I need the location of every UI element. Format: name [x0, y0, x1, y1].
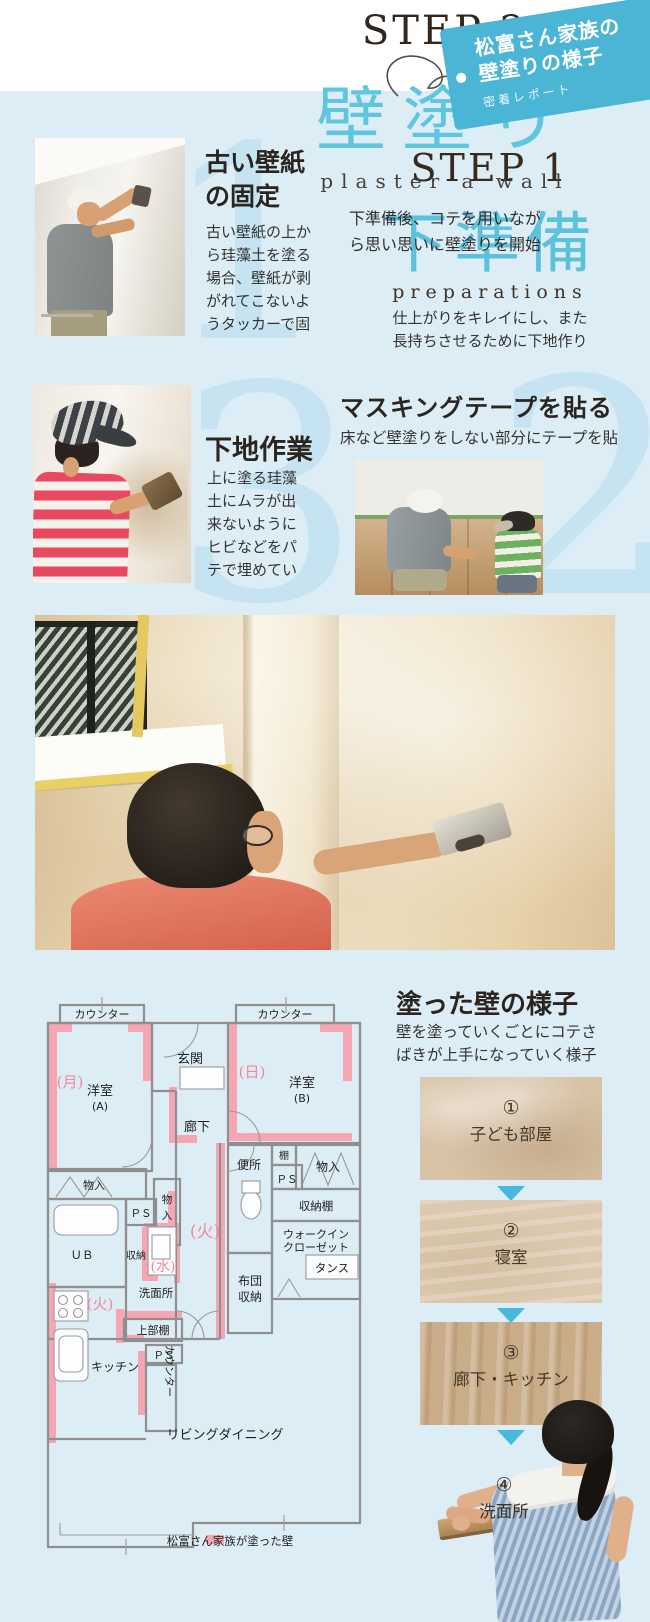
item3-body: 上に塗る珪藻 土にムラが出 来ないように ヒビなどをパ テで埋めてい — [207, 467, 297, 582]
ladder-shape — [41, 314, 93, 336]
label-closet-right: 物入 — [316, 1160, 340, 1174]
item3-title: 下地作業 — [205, 428, 313, 467]
label-counter-kitchen: カウンター — [163, 1345, 175, 1398]
painted-section-title: 塗った壁の様子 — [396, 984, 578, 1021]
label-shunou: 収納 — [126, 1249, 146, 1262]
wall-sample-bedroom: ② 寝室 — [420, 1200, 602, 1303]
striped-shirt-shape — [33, 471, 131, 583]
mark-sunday: (日) — [239, 1063, 266, 1081]
label-counter-b: カウンター — [258, 1008, 313, 1021]
legend-text: 松富さん家族が塗った壁 — [167, 1534, 294, 1548]
label-upper-shelf: 上部棚 — [137, 1323, 170, 1337]
photo-plastering-wall — [35, 615, 615, 950]
label-closet-mid-1: 物 — [162, 1193, 173, 1206]
label-closet-left: 物入 — [83, 1178, 105, 1192]
label-ps2: ＰＳ — [131, 1208, 152, 1220]
label-ps1: ＰＳ — [277, 1174, 298, 1186]
man-figure — [47, 224, 113, 316]
label-ub: ＵＢ — [71, 1248, 94, 1262]
wall-sample-washroom-label: ④ 洗面所 — [452, 1474, 556, 1522]
label-genkan: 玄関 — [177, 1052, 203, 1067]
label-room-a-sub: (A) — [92, 1100, 108, 1113]
step1-title-en: preparations — [350, 281, 630, 303]
label-shelf: 棚 — [279, 1149, 289, 1162]
label-living-dining: リビングダイニング — [166, 1428, 283, 1443]
mark-tuesday-hall: (火) — [190, 1222, 220, 1242]
shorts-shape — [497, 575, 537, 593]
tag-text: 松富さん家族の 壁塗りの様子 密着レポート — [473, 7, 650, 111]
step2-description: 下準備後、コテを用いなが ら思い思いに壁塗りを開始 — [155, 206, 650, 257]
hair-shape — [542, 1400, 614, 1464]
label-room-b: 洋室 — [289, 1075, 315, 1091]
wall-sample-kids-room: ① 子ども部屋 — [420, 1077, 602, 1180]
label-futon-1: 布団 — [238, 1274, 262, 1288]
down-arrow-icon — [497, 1308, 525, 1323]
label-counter-a: カウンター — [75, 1008, 130, 1021]
step2-title-en: plaster a wall — [155, 169, 650, 193]
step1-description: 仕上がりをキレイにし、また 長持ちさせるために下地作り — [340, 307, 640, 354]
label-walkin-2: クローゼット — [283, 1241, 349, 1254]
label-tansu: タンス — [315, 1261, 349, 1275]
label-hallway: 廊下 — [184, 1119, 210, 1135]
mark-monday: (月) — [57, 1073, 84, 1091]
label-closet-mid-2: 入 — [162, 1210, 173, 1222]
label-room-a: 洋室 — [87, 1083, 113, 1099]
down-arrow-icon — [497, 1186, 525, 1201]
mark-water: (水) — [151, 1259, 176, 1275]
glasses-shape — [241, 825, 273, 846]
label-room-b-sub: (B) — [294, 1092, 310, 1105]
label-toilet: 便所 — [237, 1158, 261, 1172]
item2-title: マスキングテープを貼る — [340, 388, 620, 423]
floor-plan: カウンター カウンター (月) 洋室 (A) 玄関 (日) 洋室 (B) 廊下 … — [30, 983, 380, 1563]
label-walkin-1: ウォークイン — [283, 1228, 349, 1241]
magazine-page: 松富さん家族の 壁塗りの様子 密着レポート 1 3 2 古い壁紙 の固定 古い壁… — [0, 0, 650, 1622]
face-shape — [63, 457, 79, 477]
father-figure — [387, 507, 451, 573]
label-kitchen: キッチン — [91, 1360, 139, 1374]
mark-tuesday-kitchen: (火) — [87, 1295, 114, 1313]
photo-base-work-boy — [33, 385, 191, 583]
boy-figure — [495, 529, 541, 579]
head-towel-shape — [407, 489, 443, 513]
item2-subtitle: 床など壁塗りをしない部分にテープを貼 — [340, 426, 630, 448]
label-washroom: 洗面所 — [139, 1286, 174, 1300]
tag-hole-icon — [456, 72, 467, 83]
window-frame-shape — [87, 621, 95, 733]
label-storage-shelf: 収納棚 — [299, 1199, 334, 1213]
label-futon-2: 収納 — [238, 1290, 262, 1304]
painted-section-description: 壁を塗っていくごとにコテさ ばきが上手になっていく様子 — [396, 1021, 597, 1068]
man-hair-shape — [127, 763, 267, 888]
shorts-shape — [393, 569, 447, 591]
photo-masking-tape — [355, 459, 543, 595]
